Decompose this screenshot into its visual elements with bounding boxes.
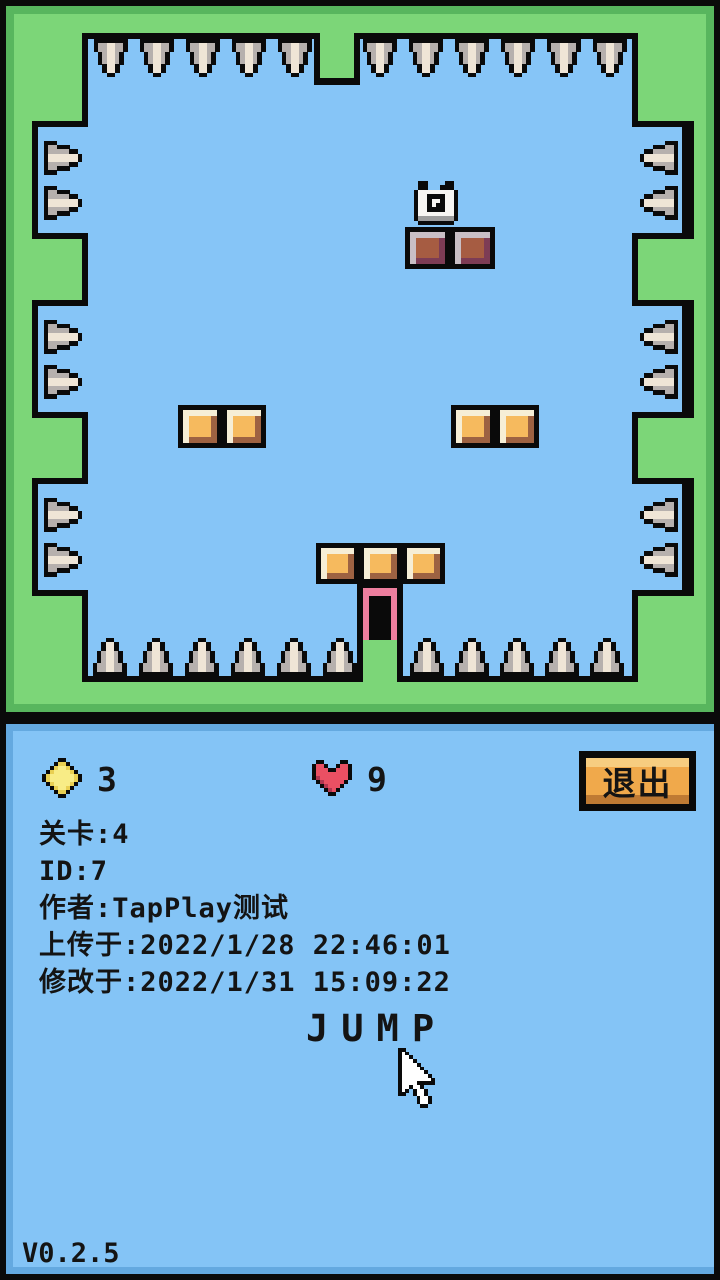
coin-count: 3 (97, 760, 117, 800)
spike-icon (139, 638, 173, 676)
spike-icon (140, 39, 174, 77)
exit-door-threshold (363, 640, 397, 682)
app-screen: 3 9 退出 关卡:4 ID:7 作者:TapPlay测试 上传于:2022/1… (0, 0, 720, 1280)
author-label: 作者:TapPlay测试 (39, 890, 451, 927)
spike-icon (277, 638, 311, 676)
uploaded-at-label: 上传于:2022/1/28 22:46:01 (39, 927, 451, 964)
heart-icon (312, 760, 352, 796)
spike-icon (640, 141, 678, 175)
spike-icon (44, 365, 82, 399)
level-number-label: 关卡:4 (39, 816, 451, 853)
spike-icon (501, 39, 535, 77)
spike-icon (547, 39, 581, 77)
spike-icon (232, 39, 266, 77)
spike-icon (640, 543, 678, 577)
spike-icon (278, 39, 312, 77)
spike-icon (186, 39, 220, 77)
spike-icon (363, 39, 397, 77)
player-character (414, 181, 462, 225)
exit-door-opening (369, 596, 391, 640)
version-label: V0.2.5 (22, 1238, 120, 1269)
spike-icon (231, 638, 265, 676)
spike-icon (545, 638, 579, 676)
info-panel: 3 9 退出 关卡:4 ID:7 作者:TapPlay测试 上传于:2022/1… (0, 718, 720, 1280)
spike-icon (93, 638, 127, 676)
spike-icon (94, 39, 128, 77)
level-info: 关卡:4 ID:7 作者:TapPlay测试 上传于:2022/1/28 22:… (39, 816, 451, 1001)
spike-icon (44, 320, 82, 354)
modified-at-label: 修改于:2022/1/31 15:09:22 (39, 964, 451, 1001)
spike-icon (409, 39, 443, 77)
spike-icon (500, 638, 534, 676)
spike-icon (640, 498, 678, 532)
top-notch (320, 33, 354, 78)
spike-icon (410, 638, 444, 676)
spike-icon (323, 638, 357, 676)
spike-icon (640, 365, 678, 399)
life-count: 9 (367, 760, 387, 800)
game-viewport[interactable] (0, 0, 720, 718)
spike-icon (44, 543, 82, 577)
jump-hint-label: JUMP (306, 1007, 447, 1050)
coin-icon (42, 758, 82, 798)
exit-button[interactable]: 退出 (579, 751, 696, 811)
spike-icon (185, 638, 219, 676)
spike-icon (640, 320, 678, 354)
spike-icon (640, 186, 678, 220)
spike-icon (590, 638, 624, 676)
spike-icon (44, 498, 82, 532)
level-id-label: ID:7 (39, 853, 451, 890)
exit-button-label: 退出 (579, 751, 696, 811)
spike-icon (44, 141, 82, 175)
spike-icon (455, 638, 489, 676)
spike-icon (44, 186, 82, 220)
spike-icon (593, 39, 627, 77)
cursor-icon (398, 1048, 446, 1107)
spike-icon (455, 39, 489, 77)
